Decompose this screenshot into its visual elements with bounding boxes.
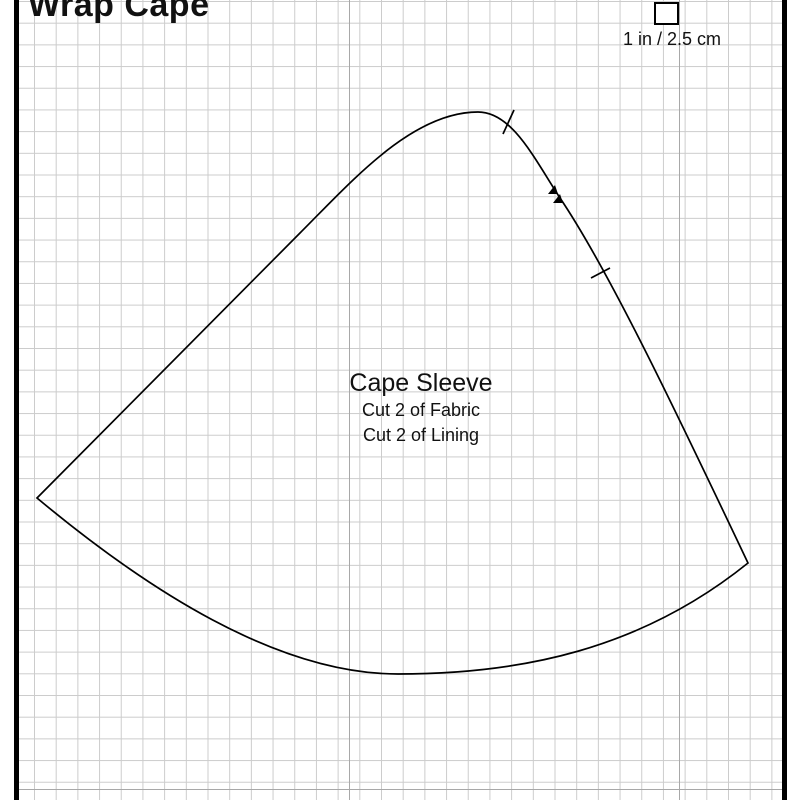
pattern-piece-label: Cape Sleeve Cut 2 of Fabric Cut 2 of Lin… xyxy=(349,369,492,448)
scale-test-square-label: 1 in / 2.5 cm xyxy=(623,29,721,50)
scale-test-square-icon xyxy=(654,2,679,25)
pattern-page: Wrap Cape 1 in / 2.5 cm Cape Sleeve Cut … xyxy=(0,0,800,800)
page-title: Wrap Cape xyxy=(28,0,209,25)
cut-instruction-lining: Cut 2 of Lining xyxy=(349,423,492,448)
cut-instruction-fabric: Cut 2 of Fabric xyxy=(349,398,492,423)
pattern-piece-name: Cape Sleeve xyxy=(349,369,492,398)
